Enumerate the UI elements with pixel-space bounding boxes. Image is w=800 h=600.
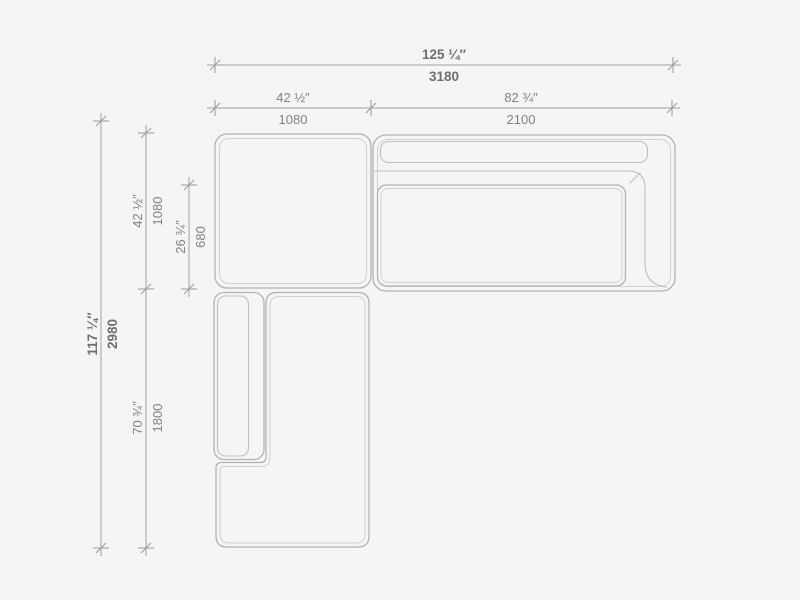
left-module-outline	[215, 134, 371, 288]
left-module-inner-line	[220, 139, 367, 284]
dim-right-module-width-inches-label: 82 ¾″	[504, 90, 538, 105]
right-module-seat-cushion-inner-line	[381, 189, 622, 283]
chaise-backrest-outline	[214, 293, 264, 460]
dim-overall-width-inches-label: 125 ¼″	[422, 47, 467, 62]
chaise-seat-outline	[216, 293, 369, 548]
dim-overall-width: 125 ¼″ 3180	[207, 47, 681, 84]
sofa-plan	[214, 134, 675, 547]
dim-module-depths: 42 ½″ 1080 70 ¾″ 1800	[130, 125, 165, 556]
dim-left-module-width-mm-label: 1080	[279, 112, 308, 127]
right-module-corner-seam-line	[630, 173, 641, 184]
dimension-drawing-canvas: 125 ¼″ 3180 42 ½″ 1080 82 ¾″ 2100 117 ¼″…	[0, 0, 800, 600]
dim-overall-depth: 117 ¼″ 2980	[85, 113, 120, 556]
dim-overall-depth-mm-label: 2980	[105, 319, 120, 349]
chaise-seat-inner-line	[220, 297, 365, 544]
right-module-body-outline	[373, 135, 675, 291]
right-module-back-cushion-outline	[381, 142, 648, 163]
dim-seat-depth-inches-label: 26 ¾″	[173, 220, 188, 254]
right-module-body-inner-line	[378, 140, 671, 287]
chaise-backrest-cushion-outline	[218, 296, 249, 456]
dim-overall-depth-inches-label: 117 ¼″	[85, 312, 100, 356]
dim-chaise-depth-inches-label: 70 ¾″	[130, 401, 145, 435]
dim-overall-width-mm-label: 3180	[429, 69, 459, 84]
dim-chaise-depth-mm-label: 1800	[150, 404, 165, 433]
dim-module-widths: 42 ½″ 1080 82 ¾″ 2100	[207, 90, 680, 127]
dim-right-module-width-mm-label: 2100	[507, 112, 536, 127]
dim-left-module-depth-inches-label: 42 ½″	[130, 194, 145, 228]
right-module-seat-cushion-outline	[378, 185, 626, 286]
dim-seat-depth: 26 ¾″ 680	[173, 177, 208, 297]
dim-seat-depth-mm-label: 680	[193, 226, 208, 248]
dim-left-module-width-inches-label: 42 ½″	[276, 90, 310, 105]
dim-left-module-depth-mm-label: 1080	[150, 197, 165, 226]
